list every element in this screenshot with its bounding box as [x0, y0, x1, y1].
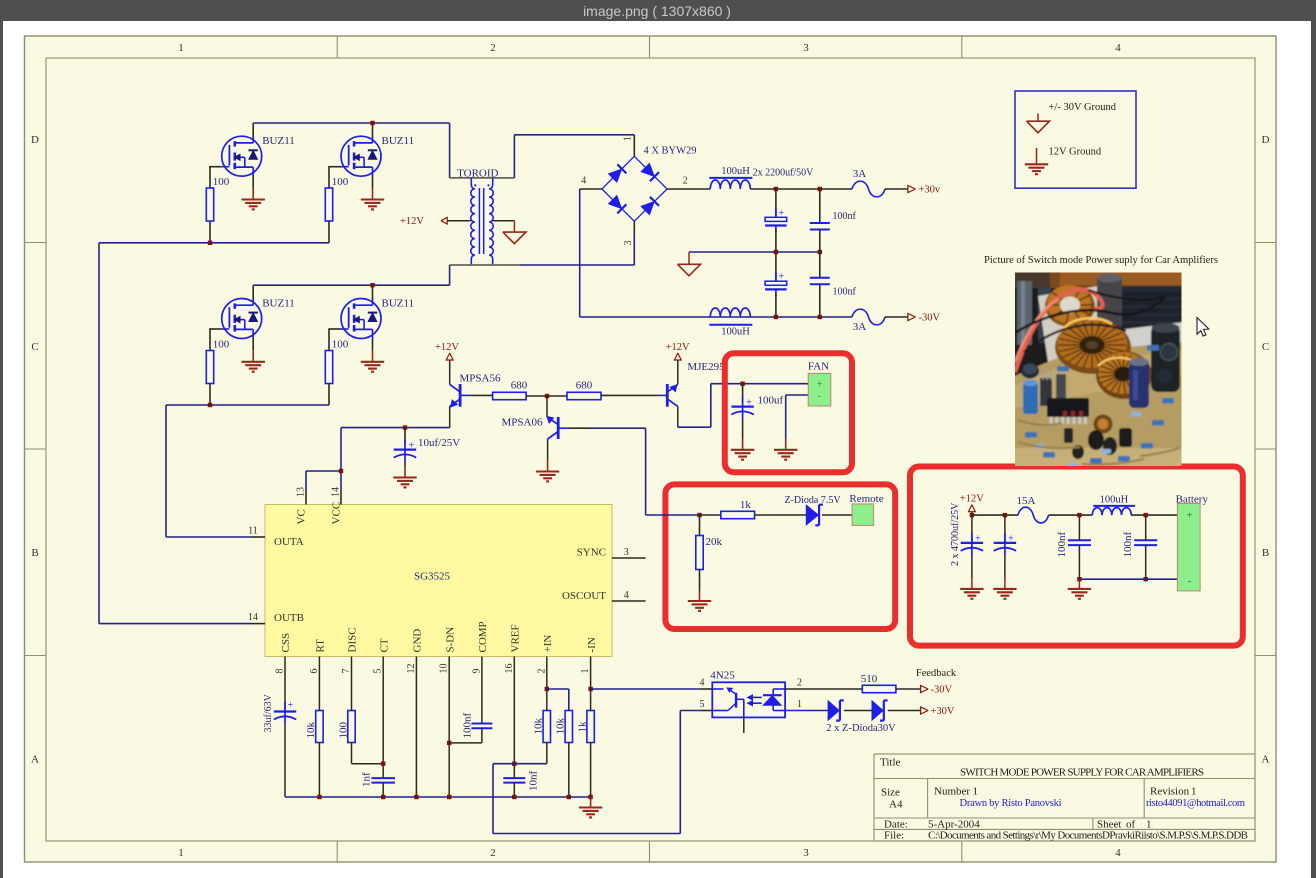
svg-text:1: 1	[973, 786, 979, 798]
svg-text:2: 2	[490, 847, 496, 859]
svg-text:OUTB: OUTB	[274, 612, 304, 624]
svg-text:GND: GND	[412, 629, 424, 653]
svg-text:15A: 15A	[1017, 495, 1036, 507]
svg-text:+12V: +12V	[960, 494, 984, 505]
svg-text:VC: VC	[296, 509, 308, 524]
svg-text:-: -	[818, 391, 821, 401]
svg-text:A: A	[31, 754, 39, 766]
svg-text:SYNC: SYNC	[577, 547, 606, 559]
svg-text:100nf: 100nf	[1122, 532, 1134, 558]
svg-text:CSS: CSS	[280, 633, 292, 653]
svg-text:MPSA06: MPSA06	[502, 417, 543, 429]
svg-text:Sheet: Sheet	[1097, 819, 1121, 831]
svg-text:SG3525: SG3525	[414, 571, 451, 583]
svg-text:OUTA: OUTA	[274, 536, 304, 548]
svg-text:-30V: -30V	[931, 684, 953, 695]
svg-text:4: 4	[700, 678, 705, 689]
svg-text:B: B	[31, 547, 38, 559]
svg-text:10nf: 10nf	[528, 771, 540, 792]
svg-text:MPSA56: MPSA56	[460, 373, 501, 385]
svg-text:12V Ground: 12V Ground	[1049, 147, 1102, 158]
svg-text:7: 7	[341, 669, 352, 674]
svg-text:Drawn by Risto Panovski: Drawn by Risto Panovski	[960, 798, 1062, 809]
svg-text:OSCOUT: OSCOUT	[562, 590, 606, 602]
svg-text:14: 14	[331, 487, 342, 497]
svg-text:100uf: 100uf	[758, 394, 784, 406]
svg-text:FAN: FAN	[808, 361, 829, 373]
svg-text:12: 12	[406, 664, 417, 674]
svg-text:100: 100	[332, 339, 349, 351]
svg-text:RT: RT	[315, 639, 327, 653]
svg-text:100uH: 100uH	[721, 327, 750, 338]
svg-text:680: 680	[576, 380, 593, 392]
svg-text:Number: Number	[934, 786, 970, 798]
svg-text:BUZ11: BUZ11	[382, 298, 415, 310]
svg-text:-IN: -IN	[586, 637, 598, 652]
svg-text:File:: File:	[884, 830, 904, 842]
svg-text:6: 6	[309, 669, 320, 674]
svg-text:B: B	[1262, 547, 1269, 559]
svg-text:100uH: 100uH	[721, 166, 750, 177]
svg-text:14: 14	[248, 612, 258, 623]
svg-text:5: 5	[373, 669, 384, 674]
svg-text:+30V: +30V	[931, 706, 955, 717]
svg-text:100: 100	[213, 176, 230, 188]
svg-text:3: 3	[624, 547, 629, 558]
svg-text:Feedback: Feedback	[916, 668, 957, 679]
svg-text:Z-Dioda 7.5V: Z-Dioda 7.5V	[784, 495, 841, 506]
svg-text:1: 1	[178, 42, 184, 54]
svg-text:1nf: 1nf	[361, 772, 373, 787]
svg-text:MJE295: MJE295	[687, 361, 725, 373]
svg-text:680: 680	[511, 380, 528, 392]
svg-text:4: 4	[624, 590, 629, 601]
svg-text:2 x Z-Dioda30V: 2 x Z-Dioda30V	[826, 723, 896, 734]
svg-text:Size: Size	[881, 787, 900, 799]
svg-text:1: 1	[1191, 786, 1197, 798]
svg-text:A4: A4	[889, 799, 903, 811]
svg-text:3A: 3A	[853, 321, 867, 333]
svg-text:+: +	[287, 700, 293, 711]
svg-text:Title: Title	[880, 757, 901, 769]
svg-text:2: 2	[797, 678, 802, 689]
svg-text:4: 4	[581, 176, 586, 187]
svg-text:+: +	[1187, 511, 1193, 522]
svg-text:100nf: 100nf	[833, 287, 857, 298]
svg-text:C:\Documents and Settings\r\My: C:\Documents and Settings\r\My Documents…	[928, 830, 1248, 842]
svg-text:10k: 10k	[555, 718, 567, 735]
svg-text:100nf: 100nf	[1056, 532, 1068, 558]
svg-text:+12V: +12V	[435, 342, 459, 353]
svg-text:C: C	[31, 341, 38, 353]
svg-text:CT: CT	[378, 638, 390, 652]
svg-text:2 x 4700uf/25V: 2 x 4700uf/25V	[950, 502, 961, 566]
svg-text:10uf/25V: 10uf/25V	[418, 437, 460, 449]
svg-text:risto44091@hotmail.com: risto44091@hotmail.com	[1146, 798, 1245, 809]
svg-text:1k: 1k	[576, 721, 588, 733]
svg-text:2: 2	[490, 42, 496, 54]
svg-text:D: D	[1262, 134, 1270, 146]
svg-text:33uf/63V: 33uf/63V	[263, 693, 274, 732]
svg-text:5-Apr-2004: 5-Apr-2004	[928, 819, 980, 831]
svg-text:-: -	[1188, 576, 1191, 587]
svg-text:100: 100	[332, 176, 349, 188]
svg-text:VCC: VCC	[331, 502, 343, 525]
svg-text:100uH: 100uH	[1100, 494, 1129, 505]
svg-text:-30V: -30V	[919, 313, 941, 324]
svg-text:4N25: 4N25	[710, 670, 735, 682]
svg-text:+: +	[817, 379, 822, 389]
svg-text:10k: 10k	[533, 718, 545, 735]
svg-text:1: 1	[1146, 819, 1152, 831]
svg-text:1k: 1k	[740, 499, 752, 511]
svg-text:4 X BYW29: 4 X BYW29	[643, 146, 696, 157]
svg-text:DISC: DISC	[347, 627, 359, 652]
svg-text:BUZ11: BUZ11	[262, 135, 295, 147]
svg-text:8: 8	[275, 669, 286, 674]
svg-text:11: 11	[248, 525, 258, 536]
svg-text:1: 1	[580, 669, 591, 674]
svg-text:SWITCH MODE POWER SUPPLY FOR C: SWITCH MODE POWER SUPPLY FOR CAR AMPLIFI…	[960, 767, 1204, 779]
svg-text:16: 16	[504, 664, 515, 674]
svg-text:100nf: 100nf	[833, 211, 857, 222]
svg-text:100: 100	[213, 339, 230, 351]
svg-text:9: 9	[471, 669, 482, 674]
svg-text:BUZ11: BUZ11	[262, 298, 295, 310]
svg-text:+12V: +12V	[400, 216, 424, 227]
svg-text:TOROID: TOROID	[457, 168, 498, 180]
svg-text:+IN: +IN	[542, 635, 554, 653]
svg-text:5: 5	[700, 699, 705, 710]
svg-text:2x 2200uf/50V: 2x 2200uf/50V	[753, 167, 815, 178]
svg-text:VREF: VREF	[510, 624, 522, 652]
svg-text:2: 2	[683, 176, 688, 187]
svg-text:3: 3	[803, 847, 809, 859]
svg-text:+12V: +12V	[666, 342, 690, 353]
svg-text:3A: 3A	[853, 168, 867, 180]
svg-text:Revision: Revision	[1150, 786, 1190, 798]
svg-text:Date:: Date:	[884, 819, 908, 831]
svg-text:100nf: 100nf	[461, 713, 473, 739]
svg-text:510: 510	[861, 673, 878, 685]
svg-text:20k: 20k	[706, 536, 723, 548]
svg-text:of: of	[1126, 819, 1136, 831]
svg-text:13: 13	[296, 487, 307, 497]
svg-text:3: 3	[803, 42, 809, 54]
svg-text:1: 1	[178, 847, 184, 859]
svg-text:10: 10	[439, 664, 450, 674]
svg-text:image.png ( 1307x860 ): image.png ( 1307x860 )	[583, 3, 731, 19]
svg-text:+30v: +30v	[919, 184, 941, 195]
svg-text:10k: 10k	[305, 722, 317, 739]
svg-text:2: 2	[536, 669, 547, 674]
svg-text:1: 1	[797, 699, 802, 710]
svg-text:3: 3	[623, 241, 634, 246]
svg-text:C: C	[1262, 341, 1269, 353]
svg-text:1: 1	[623, 136, 634, 141]
svg-text:4: 4	[1115, 847, 1121, 859]
svg-text:+/- 30V Ground: +/- 30V Ground	[1049, 102, 1117, 113]
svg-text:4: 4	[1115, 42, 1121, 54]
svg-text:S-DN: S-DN	[444, 627, 456, 653]
svg-text:BUZ11: BUZ11	[382, 135, 415, 147]
svg-text:100: 100	[337, 722, 349, 739]
svg-text:D: D	[31, 134, 39, 146]
svg-text:Picture of Switch mode Power s: Picture of Switch mode Power suply for C…	[984, 255, 1218, 266]
svg-text:A: A	[1262, 754, 1270, 766]
svg-text:COMP: COMP	[477, 621, 489, 652]
